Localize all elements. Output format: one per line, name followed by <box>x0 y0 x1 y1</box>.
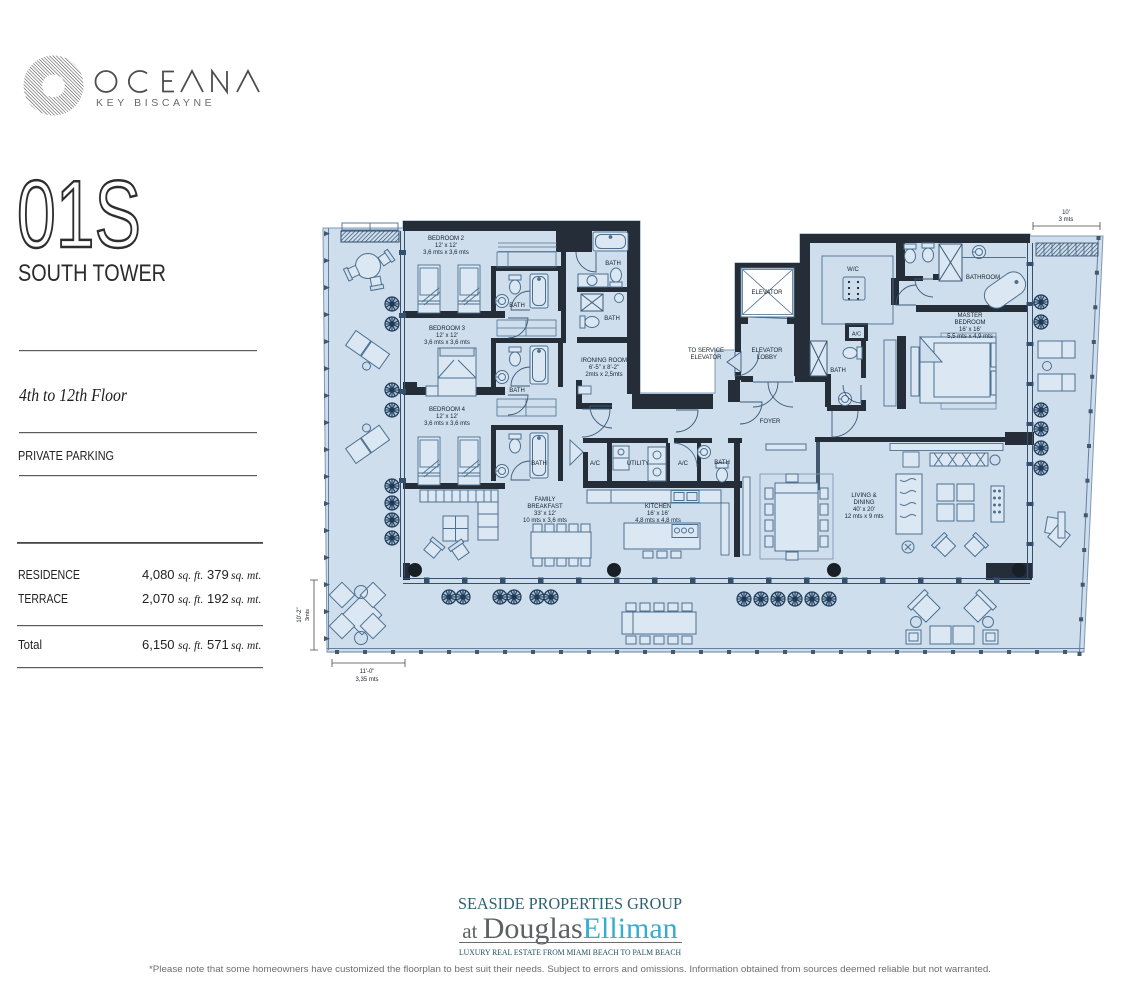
svg-text:at DouglasElliman: at DouglasElliman <box>462 912 677 945</box>
svg-text:BATH: BATH <box>604 316 620 322</box>
svg-text:12' x 12': 12' x 12' <box>436 414 458 420</box>
svg-text:MASTER: MASTER <box>957 313 983 319</box>
svg-text:LIVING &: LIVING & <box>851 493 876 499</box>
svg-text:571: 571 <box>207 637 229 652</box>
svg-text:10': 10' <box>1062 210 1070 216</box>
svg-text:3mts: 3mts <box>305 609 311 621</box>
svg-text:BATH: BATH <box>605 261 621 267</box>
svg-text:3 mts: 3 mts <box>1059 217 1074 223</box>
svg-text:BATHROOM: BATHROOM <box>966 275 1000 281</box>
svg-text:FAMILY: FAMILY <box>535 497 556 503</box>
svg-text:A/C: A/C <box>590 461 601 467</box>
svg-text:10'-2": 10'-2" <box>297 607 303 622</box>
svg-text:3,35 mts: 3,35 mts <box>355 677 378 683</box>
svg-text:ELEVATOR: ELEVATOR <box>751 290 783 296</box>
svg-text:LUXURY REAL ESTATE FROM MIAMI: LUXURY REAL ESTATE FROM MIAMI BEACH TO P… <box>459 948 681 957</box>
svg-text:SEASIDE PROPERTIES GROUP: SEASIDE PROPERTIES GROUP <box>458 894 682 913</box>
svg-text:BEDROOM 3: BEDROOM 3 <box>429 326 466 332</box>
svg-text:FOYER: FOYER <box>760 419 781 425</box>
svg-text:KITCHEN: KITCHEN <box>645 504 671 510</box>
svg-text:TERRACE: TERRACE <box>18 592 68 606</box>
svg-text:SOUTH TOWER: SOUTH TOWER <box>18 260 166 287</box>
svg-text:BREAKFAST: BREAKFAST <box>527 504 563 510</box>
svg-text:BEDROOM: BEDROOM <box>954 320 985 326</box>
svg-text:3,6 mts x 3,6 mts: 3,6 mts x 3,6 mts <box>424 340 470 346</box>
svg-text:BATH: BATH <box>509 388 525 394</box>
svg-text:ELEVATOR: ELEVATOR <box>751 348 783 354</box>
svg-text:DINING: DINING <box>854 500 875 506</box>
svg-text:BATH: BATH <box>509 303 525 309</box>
svg-text:BATH: BATH <box>531 461 547 467</box>
svg-text:4th to 12th Floor: 4th to 12th Floor <box>19 385 127 405</box>
svg-text:11'-0": 11'-0" <box>360 669 375 675</box>
svg-text:33' x 12': 33' x 12' <box>534 511 556 517</box>
svg-text:IRONING ROOM: IRONING ROOM <box>581 358 627 364</box>
svg-text:10 mts x 3,6 mts: 10 mts x 3,6 mts <box>523 518 567 524</box>
svg-text:RESIDENCE: RESIDENCE <box>18 568 80 582</box>
svg-text:BATH: BATH <box>830 368 846 374</box>
svg-text:2mts x 2,5mts: 2mts x 2,5mts <box>585 372 622 378</box>
svg-text:KEY BISCAYNE: KEY BISCAYNE <box>96 97 215 109</box>
svg-text:sq. ft.: sq. ft. <box>178 594 203 606</box>
svg-text:PRIVATE PARKING: PRIVATE PARKING <box>18 449 114 463</box>
svg-text:sq. mt.: sq. mt. <box>231 594 261 606</box>
svg-text:3,6 mts x 3,6 mts: 3,6 mts x 3,6 mts <box>424 421 470 427</box>
svg-text:UTILITY: UTILITY <box>627 461 649 467</box>
svg-text:2,070: 2,070 <box>142 591 175 606</box>
svg-text:LOBBY: LOBBY <box>757 355 777 361</box>
svg-text:16' x 16': 16' x 16' <box>959 327 981 333</box>
svg-text:12' x 12': 12' x 12' <box>436 333 458 339</box>
svg-text:192: 192 <box>207 591 229 606</box>
svg-text:4,080: 4,080 <box>142 567 175 582</box>
svg-text:W/C: W/C <box>847 267 859 273</box>
svg-text:16' x 16': 16' x 16' <box>647 511 669 517</box>
svg-text:BATH: BATH <box>714 460 730 466</box>
svg-text:A/C: A/C <box>852 332 861 338</box>
svg-text:6'-5" x 8'-2": 6'-5" x 8'-2" <box>589 365 619 371</box>
svg-text:01S: 01S <box>17 161 141 268</box>
svg-text:6,150: 6,150 <box>142 637 175 652</box>
svg-text:5,5 mts x 4,9 mts: 5,5 mts x 4,9 mts <box>947 334 993 340</box>
svg-text:sq. mt.: sq. mt. <box>231 570 261 582</box>
svg-text:40' x 20': 40' x 20' <box>853 507 875 513</box>
svg-text:sq. ft.: sq. ft. <box>178 640 203 652</box>
svg-text:Total: Total <box>18 638 42 652</box>
svg-text:TO SERVICE: TO SERVICE <box>688 348 724 354</box>
svg-text:3,6 mts x 3,6 mts: 3,6 mts x 3,6 mts <box>423 250 469 256</box>
svg-text:ELEVATOR: ELEVATOR <box>690 355 722 361</box>
svg-text:379: 379 <box>207 567 229 582</box>
svg-text:BEDROOM 4: BEDROOM 4 <box>429 407 466 413</box>
svg-text:*Please note that some homeown: *Please note that some homeowners have c… <box>149 964 991 974</box>
svg-text:sq. ft.: sq. ft. <box>178 570 203 582</box>
svg-text:12' x 12': 12' x 12' <box>435 243 457 249</box>
svg-text:sq. mt.: sq. mt. <box>231 640 261 652</box>
svg-text:BEDROOM 2: BEDROOM 2 <box>428 236 465 242</box>
svg-text:A/C: A/C <box>678 461 689 467</box>
svg-text:12 mts x 9 mts: 12 mts x 9 mts <box>844 514 883 520</box>
svg-text:4,8 mts x 4,8 mts: 4,8 mts x 4,8 mts <box>635 518 681 524</box>
